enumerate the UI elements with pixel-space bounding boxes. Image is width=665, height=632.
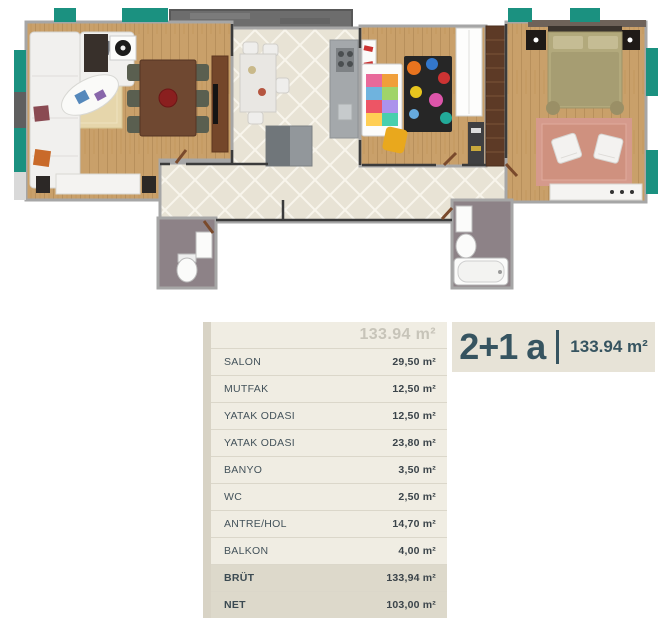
table-row: YATAK ODASI 23,80 m² xyxy=(211,429,447,456)
table-row: BANYO 3,50 m² xyxy=(211,456,447,483)
white-wardrobe xyxy=(456,28,482,116)
room-label: BANYO xyxy=(224,464,262,476)
room-area: 14,70 m² xyxy=(392,518,436,530)
facade-gray-block xyxy=(14,92,26,128)
dining-table xyxy=(127,60,209,136)
bath-sink xyxy=(456,206,472,232)
dark-shelf xyxy=(468,122,484,166)
room-label: YATAK ODASI xyxy=(224,437,295,449)
table-row: YATAK ODASI 12,50 m² xyxy=(211,402,447,429)
header-total-area: 133.94 m² xyxy=(359,326,436,344)
room-area: 29,50 m² xyxy=(392,356,436,368)
floor-plan xyxy=(0,0,665,316)
room-label: ANTRE/HOL xyxy=(224,518,287,530)
table-row: MUTFAK 12,50 m² xyxy=(211,375,447,402)
table-row: ANTRE/HOL 14,70 m² xyxy=(211,510,447,537)
summary-label: BRÜT xyxy=(224,572,254,584)
sideboard xyxy=(56,174,140,194)
kids-bed xyxy=(362,64,402,136)
nightstand-right xyxy=(620,30,640,50)
dresser xyxy=(550,184,642,200)
summary-label: NET xyxy=(224,599,246,611)
wc-toilet xyxy=(177,254,197,282)
kitchen-counter xyxy=(330,40,358,138)
table-row-net: NET 103,00 m² xyxy=(211,591,447,618)
room-bathroom xyxy=(452,200,512,288)
tv-unit xyxy=(212,56,228,152)
master-bed xyxy=(546,26,624,115)
table-row: WC 2,50 m² xyxy=(211,483,447,510)
plan-total-area: 133.94 m² xyxy=(570,337,648,357)
room-master-bedroom xyxy=(506,20,646,202)
pillow xyxy=(33,149,51,167)
facade-light-block xyxy=(14,172,26,200)
room-area: 3,50 m² xyxy=(398,464,436,476)
table-header-row: 133.94 m² xyxy=(211,322,447,348)
kitchen-island xyxy=(266,126,312,166)
summary-area: 133,94 m² xyxy=(386,572,436,584)
room-label: YATAK ODASI xyxy=(224,410,295,422)
bath-toilet xyxy=(456,234,476,258)
bathtub xyxy=(454,258,508,285)
speaker-right xyxy=(142,176,156,193)
speaker xyxy=(110,36,136,60)
table-row-brut: BRÜT 133,94 m² xyxy=(211,564,447,591)
summary-area: 103,00 m² xyxy=(386,599,436,611)
dark-cabinet xyxy=(84,34,108,72)
title-divider xyxy=(556,330,559,364)
pillow xyxy=(33,105,49,121)
wc-sink xyxy=(196,232,212,258)
speaker-left xyxy=(36,176,50,193)
room-area: 23,80 m² xyxy=(392,437,436,449)
kids-rug xyxy=(404,56,452,132)
nightstand-left xyxy=(526,30,546,50)
room-wc xyxy=(158,218,216,288)
room-label: MUTFAK xyxy=(224,383,268,395)
room-label: WC xyxy=(224,491,242,503)
table-row: SALON 29,50 m² xyxy=(211,348,447,375)
plan-type-label: 2+1 a xyxy=(459,329,545,365)
room-kids-bedroom xyxy=(360,26,486,166)
corridor-wardrobe xyxy=(486,26,506,166)
armchair-right xyxy=(593,133,623,163)
plan-title: 2+1 a 133.94 m² xyxy=(452,322,655,372)
room-area: 4,00 m² xyxy=(398,545,436,557)
room-area: 12,50 m² xyxy=(392,410,436,422)
room-area: 12,50 m² xyxy=(392,383,436,395)
room-label: BALKON xyxy=(224,545,268,557)
room-label: SALON xyxy=(224,356,261,368)
area-table: 133.94 m² SALON 29,50 m² MUTFAK 12,50 m²… xyxy=(203,322,447,618)
room-area: 2,50 m² xyxy=(398,491,436,503)
table-row: BALKON 4,00 m² xyxy=(211,537,447,564)
